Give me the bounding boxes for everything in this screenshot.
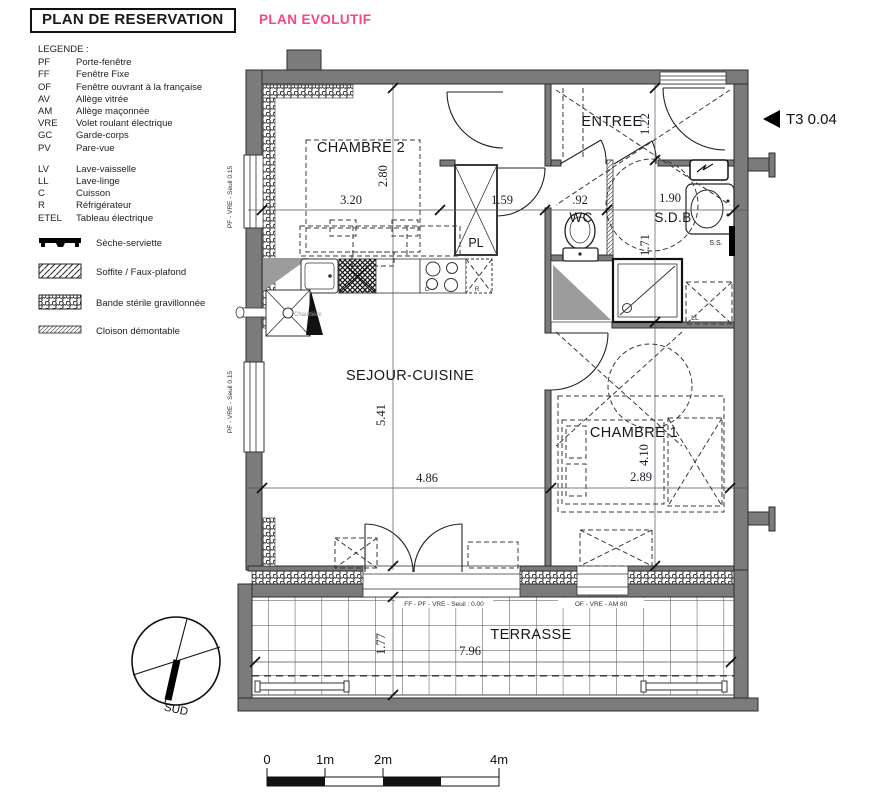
dishwasher-label: LV	[364, 287, 372, 294]
refrigerator-label: R	[475, 286, 480, 293]
scale-label-0: 0	[263, 752, 270, 767]
chambre2-bed	[306, 140, 420, 266]
dim-sdb-width: 1.90	[659, 191, 681, 205]
dim-chambre1-width: 2.89	[630, 470, 652, 484]
dim-chambre2-width: 3.20	[340, 193, 362, 207]
terrace-wall-bottom	[238, 698, 758, 711]
wall-right-stub-2	[748, 512, 770, 525]
terrace-thresholds	[363, 566, 628, 597]
window1-spec-label: PF - VRE - Seuil 0.15	[227, 166, 234, 229]
dim-sejour-width: 4.86	[416, 471, 438, 485]
room-label-terrasse: TERRASSE	[490, 627, 571, 643]
wall-right-stub-1-cap	[769, 153, 775, 177]
terrace-wall-left	[238, 584, 252, 710]
gravel-band-left-lower	[263, 518, 275, 566]
room-label-sdb: S.D.B	[654, 210, 691, 225]
scale-label-1m: 1m	[316, 752, 334, 767]
wc-door-swing	[601, 140, 606, 164]
partition-entree-wc-a	[551, 160, 561, 166]
dim-chambre1-height: 4.10	[637, 444, 651, 466]
unit-label: T3 0.04	[786, 111, 837, 128]
dim-wc-width: .92	[572, 193, 588, 207]
dim-chambre2-height: 2.80	[376, 165, 390, 187]
floor-plan: CHAMBRE 2 ENTREE PL WC S.D.B SEJOUR-CUIS…	[0, 0, 878, 800]
wall-left-3	[246, 452, 262, 570]
gravel-band-top	[263, 85, 353, 98]
kitchen-sink	[301, 259, 338, 293]
window-left-2	[244, 362, 264, 452]
partition-sejour-chambre1	[545, 390, 551, 566]
terrace-planter-right	[641, 681, 727, 692]
terrace-door-swing-left	[365, 524, 413, 572]
scale-label-4m: 4m	[490, 752, 508, 767]
scale-label-2m: 2m	[374, 752, 392, 767]
room-label-chambre1: CHAMBRE 1	[590, 425, 678, 441]
chambre2-door-swing	[447, 92, 503, 148]
dim-terrasse-width: 7.96	[459, 644, 481, 658]
wall-left-1	[246, 70, 262, 155]
window2-spec-label: PF - VRE - Seuil 0.15	[227, 371, 234, 434]
floor-edge-3	[628, 566, 734, 571]
wall-right	[734, 84, 748, 570]
terrace-planter-left	[255, 681, 349, 692]
compass: SUD	[132, 617, 220, 718]
room-label-entree: ENTREE	[581, 114, 642, 130]
sdb-door-leaf	[614, 141, 652, 164]
entrance-opening	[660, 72, 726, 84]
terrace-tile-grid	[252, 597, 734, 695]
dim-corridor: 1.59	[491, 193, 513, 207]
compass-needle	[168, 660, 177, 700]
terrace-window-spec-label: OF - VRE - AM 80	[575, 601, 628, 608]
room-label-pl: PL	[468, 236, 483, 250]
dim-terrasse-height: 1.77	[374, 633, 388, 655]
towel-radiator	[729, 226, 735, 256]
window-left-1	[244, 155, 264, 228]
sejour-furniture	[335, 538, 518, 568]
room-label-wc: WC	[569, 210, 592, 225]
dim-sdb-height: 1.71	[638, 234, 652, 256]
washing-machine-label: LL	[691, 315, 699, 322]
partition-chambre2-corridor	[440, 160, 455, 166]
room-label-sejour: SEJOUR-CUISINE	[346, 368, 474, 384]
wall-top-stub	[287, 50, 321, 70]
scale-bar-segment-1	[267, 777, 325, 786]
dim-sejour-height: 5.41	[374, 404, 388, 426]
dim-entree-height: 1.22	[638, 113, 652, 135]
entrance-door-swing	[663, 88, 725, 150]
wall-right-stub-1	[748, 158, 770, 171]
room-label-chambre2: CHAMBRE 2	[317, 140, 405, 156]
partition-sejour-sdb	[545, 208, 551, 333]
wall-right-stub-2-cap	[769, 507, 775, 531]
scale-bar-segment-2	[383, 777, 441, 786]
floor-edge-2	[520, 566, 577, 571]
terrace-wall-right	[734, 570, 748, 710]
kitchen-counter	[376, 259, 420, 293]
cooktop-label: C	[425, 286, 430, 293]
interior-partitions	[440, 84, 734, 566]
terrace-door-threshold	[363, 566, 520, 597]
terrace-door-swing-right	[414, 524, 462, 572]
scale-bar: 0 1m 2m 4m	[263, 752, 508, 786]
electrical-panel-etel	[690, 160, 728, 180]
unit-arrow-icon	[763, 110, 780, 128]
terrace-window-threshold	[577, 566, 628, 595]
boiler-label: Chaudière	[294, 312, 322, 318]
corridor-door-swing	[497, 168, 545, 216]
wc-door-leaf	[560, 140, 601, 164]
partition-sejour-entree	[545, 84, 551, 166]
floor-edge-1	[248, 566, 363, 571]
chambre1-door-swing	[551, 333, 608, 390]
towel-radiator-label: S.S.	[709, 240, 722, 247]
terrace-door-spec-label: FF - PF - VRE - Seuil : 0.00	[404, 601, 484, 608]
wall-left-2	[246, 228, 262, 362]
